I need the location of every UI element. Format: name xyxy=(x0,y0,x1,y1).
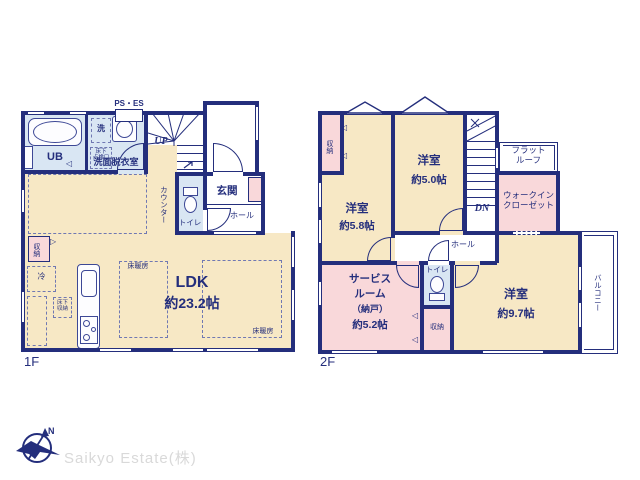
label-fridge: 冷 xyxy=(27,273,56,282)
label-floor-2f: 2F xyxy=(320,355,350,370)
label-bed58-size: 約5.8帖 xyxy=(327,221,387,233)
label-floor-heating-b: 床暖房 xyxy=(246,328,280,336)
label-bed50-size: 約5.0帖 xyxy=(399,175,459,187)
label-dn: DN xyxy=(468,203,496,214)
label-ps-es: PS・ES xyxy=(103,100,155,109)
label-hall-2f: ホール xyxy=(443,241,483,250)
label-floor-heating-a: 床暖房 xyxy=(121,263,155,271)
roof-gable-right xyxy=(400,95,450,114)
toilet-tank-1f xyxy=(183,187,198,196)
stove-burner-3 xyxy=(91,327,96,332)
shoe-cabinet xyxy=(248,177,262,202)
label-storage-2f-bottom: 収納 xyxy=(422,324,452,332)
label-hatch: 床下点検口 xyxy=(90,149,112,161)
compass-north-icon: N xyxy=(14,422,64,472)
pantry-strip xyxy=(27,296,47,346)
ps-box xyxy=(115,109,143,122)
toilet-tank-2f xyxy=(429,293,445,301)
label-bed58: 洋室 xyxy=(327,203,387,216)
label-bed50: 洋室 xyxy=(399,155,459,168)
storage2f-bottom-door-icon-2: ◁ xyxy=(412,336,418,344)
toilet-bowl-1f xyxy=(184,196,197,213)
label-up: UP xyxy=(149,136,173,147)
stair-arrow-1f xyxy=(183,160,195,170)
label-service-room: サービスルーム （納戸）約5.2帖 xyxy=(324,272,416,333)
storage-door-icon-1f: ▷ xyxy=(50,238,56,246)
stair-run-2f xyxy=(467,141,497,207)
kitchen-sink xyxy=(81,270,97,297)
bathtub-inner xyxy=(33,121,77,143)
label-balcony: バルコニー xyxy=(593,258,601,328)
label-storage-2f-left: 収納 xyxy=(325,135,333,159)
label-toilet-2f: トイレ xyxy=(422,266,452,274)
label-flat-roof: フラットルーフ xyxy=(500,146,557,165)
stair-top-2f xyxy=(467,115,497,142)
north-letter: N xyxy=(48,426,55,436)
label-floor-1f: 1F xyxy=(24,355,54,370)
label-hall-1f: ホール xyxy=(222,212,262,221)
label-ldk-size: 約23.2帖 xyxy=(147,296,237,312)
label-wic: ウォークインクローゼット xyxy=(499,191,558,210)
wash-basin-bowl xyxy=(116,120,133,138)
storage2f-door-icon-1: ◁ xyxy=(341,124,347,132)
label-toilet-1f: トイレ xyxy=(177,219,203,227)
floorplan-canvas: ◁ ▷ PS・ES UB 洗 洗面脱衣室 床下点検口 UP カウンター 玄関 ホ… xyxy=(0,0,640,480)
ldk-upper-dashed-zone xyxy=(28,174,147,234)
company-logo-text: Saikyo Estate(株) xyxy=(64,447,197,468)
label-bed97: 洋室 xyxy=(486,288,546,301)
label-genkan: 玄関 xyxy=(205,186,249,198)
storage2f-door-icon-2: ◁ xyxy=(341,152,347,160)
label-counter: カウンター xyxy=(159,176,167,234)
label-underfloor: 床下収納 xyxy=(53,300,72,312)
label-storage-1f: 収納 xyxy=(32,239,40,261)
label-ub: UB xyxy=(23,151,87,163)
label-ldk: LDK xyxy=(152,274,232,292)
label-washer: 洗 xyxy=(91,125,111,134)
toilet-bowl-2f xyxy=(430,276,444,293)
stove-burner-1 xyxy=(83,320,90,327)
stove-burner-2 xyxy=(83,334,90,341)
label-bed97-size: 約9.7帖 xyxy=(484,308,548,320)
roof-gable-left xyxy=(345,100,385,114)
